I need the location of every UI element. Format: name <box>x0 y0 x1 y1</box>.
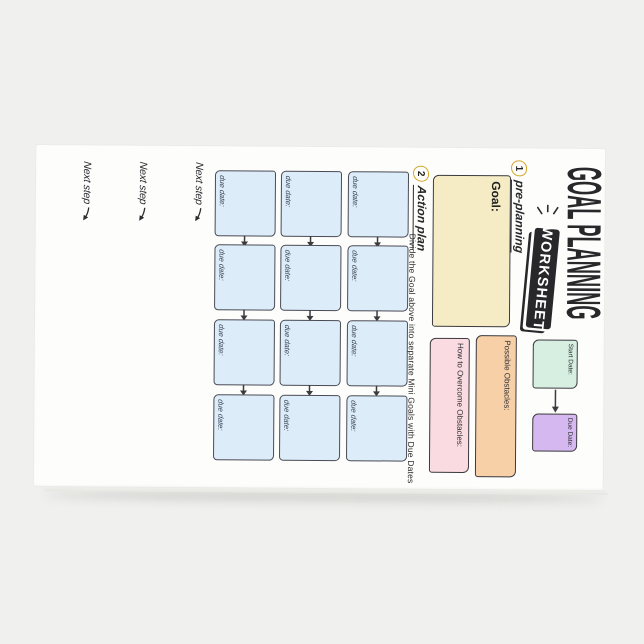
mini-goal-box: due date: <box>280 245 341 311</box>
mini-goal-box: due date: <box>347 320 408 386</box>
worksheet-title: GOAL PLANNING <box>560 167 605 320</box>
next-step-annotation: Next step <box>193 162 205 223</box>
next-step-arrow-icon <box>137 206 149 222</box>
possible-obstacles-box: Possible Obstacles: <box>475 335 517 477</box>
next-step-label: Next step <box>137 161 149 205</box>
overcome-obstacles-box: How to Overcome Obstacles: <box>429 338 470 473</box>
mini-goal-box: due date: <box>281 171 342 237</box>
mini-goal-box: due date: <box>347 245 408 311</box>
mini-goal-due-label: due date: <box>350 250 359 282</box>
mini-goal-due-label: due date: <box>283 324 292 356</box>
start-date-box: Start Date: <box>533 339 578 388</box>
step1-number-badge: 1 <box>511 160 527 176</box>
product-photo-backdrop: { "page": { "background": "#f0f0ee", "pa… <box>0 0 644 644</box>
mini-goal-due-label: due date: <box>218 175 227 207</box>
goal-box: Goal: <box>432 175 511 328</box>
sparkle-burst-icon <box>535 205 561 227</box>
mini-goal-due-label: due date: <box>282 399 291 431</box>
mini-goal-due-label: due date: <box>217 324 226 356</box>
goal-label: Goal: <box>488 181 503 326</box>
worksheet-design: GOAL PLANNING WORKSHEET 1 pre-planning G… <box>34 145 605 490</box>
mini-goal-due-label: due date: <box>216 399 225 431</box>
mini-goal-box: due date: <box>215 170 276 236</box>
step1-label: pre-planning <box>510 179 526 253</box>
possible-obstacles-label: Possible Obstacles: <box>502 340 512 476</box>
due-date-label: Due Date: <box>566 418 573 451</box>
worksheet-banner-label: WORKSHEET <box>530 226 556 332</box>
mini-goal-box: due date: <box>346 395 407 461</box>
mini-goal-box: due date: <box>214 319 275 385</box>
mini-goal-due-label: due date: <box>349 400 358 432</box>
step2-number-badge: 2 <box>413 166 429 182</box>
notepad: GOAL PLANNING WORKSHEET 1 pre-planning G… <box>34 145 605 490</box>
mini-goal-due-label: due date: <box>217 249 226 281</box>
mini-goal-box: due date: <box>280 320 341 386</box>
mini-goal-box: due date: <box>279 395 340 461</box>
mini-goal-box: due date: <box>213 394 274 460</box>
mini-goal-due-label: due date: <box>284 175 293 207</box>
next-step-arrow-icon <box>81 206 93 222</box>
step1-heading: 1 pre-planning <box>510 160 527 253</box>
overcome-obstacles-label: How to Overcome Obstacles: <box>455 343 465 472</box>
next-step-annotation: Next step <box>137 162 149 223</box>
mini-goal-box: due date: <box>348 171 409 237</box>
mini-goal-due-label: due date: <box>351 176 360 208</box>
mini-goal-due-label: due date: <box>283 249 292 281</box>
next-step-arrow-icon <box>193 207 205 223</box>
next-step-label: Next step <box>81 161 93 205</box>
due-date-box: Due Date: <box>532 413 577 451</box>
mini-goal-due-label: due date: <box>350 325 359 357</box>
worksheet-banner: WORKSHEET <box>526 228 560 330</box>
mini-goal-box: due date: <box>214 244 275 310</box>
next-step-label: Next step <box>193 161 205 205</box>
start-to-due-arrow-icon <box>550 390 560 414</box>
start-date-label: Start Date: <box>567 344 574 388</box>
next-step-annotation: Next step <box>81 161 93 222</box>
